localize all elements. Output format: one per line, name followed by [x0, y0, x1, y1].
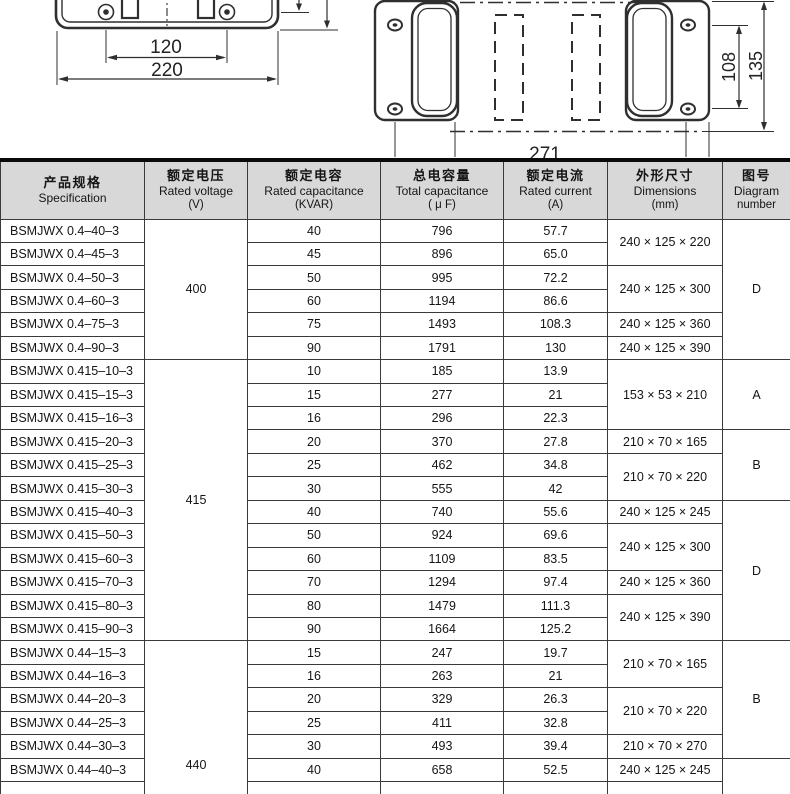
cell-dimensions: 210 × 70 × 220: [608, 688, 723, 735]
cell-dimensions: 240 × 125 × 300: [608, 524, 723, 571]
cell-spec: BSMJWX 0.44–15–3: [1, 641, 145, 664]
cell-spec: BSMJWX 0.415–70–3: [1, 571, 145, 594]
cell-dimensions: 240 × 125 × 220: [608, 219, 723, 266]
cell-rated-current: 86.6: [504, 289, 608, 312]
clamp-bracket: [627, 3, 672, 116]
header-unit: number: [725, 198, 788, 212]
cell-spec: BSMJWX 0.4–75–3: [1, 313, 145, 336]
cell-spec: BSMJWX 0.415–10–3: [1, 360, 145, 383]
cell-rated-current: 55.6: [504, 500, 608, 523]
table-row: BSMJWX 0.4–50–35099572.2240 × 125 × 300: [1, 266, 790, 289]
header-zh: 总电容量: [383, 168, 501, 184]
header-unit: ( μ F): [383, 198, 501, 212]
cell-rated-capacitance: 15: [248, 641, 381, 664]
cell-rated-voltage: 440: [145, 641, 248, 794]
cell-rated-current: 19.7: [504, 641, 608, 664]
cell-total-capacitance: 247: [381, 641, 504, 664]
cell-rated-current: 57.7: [504, 219, 608, 242]
header-en: Total capacitance: [383, 184, 501, 199]
cell-spec: BSMJWX 0.415–25–3: [1, 453, 145, 476]
col-header-rated-current: 额定电流 Rated current (A): [504, 160, 608, 219]
cell-total-capacitance: 493: [381, 735, 504, 758]
col-header-rated-voltage: 额定电压 Rated voltage (V): [145, 160, 248, 219]
cell-rated-current: 83.5: [504, 547, 608, 570]
cell-spec: BSMJWX 0.4–40–3: [1, 219, 145, 242]
cell-rated-capacitance: 60: [248, 547, 381, 570]
cell-total-capacitance: 995: [381, 266, 504, 289]
cell-spec: BSMJWX 0.415–20–3: [1, 430, 145, 453]
cell-rated-voltage: 415: [145, 360, 248, 641]
cell-rated-current: 108.3: [504, 313, 608, 336]
cell-diagram-number: D: [723, 500, 790, 641]
cell-total-capacitance: 185: [381, 360, 504, 383]
cell-dimensions: 240 × 125 × 300: [608, 266, 723, 313]
table-row: BSMJWX 0.415–50–35092469.6240 × 125 × 30…: [1, 524, 790, 547]
cell-dimensions: 240 × 125 × 390: [608, 336, 723, 359]
cell-rated-capacitance: 10: [248, 360, 381, 383]
header-zh: 额定电压: [147, 168, 245, 184]
header-zh: 图号: [725, 168, 788, 184]
cell-dimensions: 210 × 70 × 220: [608, 453, 723, 500]
table-row: BSMJWX 0.44–40–34065852.5240 × 125 × 245: [1, 758, 790, 781]
cell-spec: BSMJWX 0.415–15–3: [1, 383, 145, 406]
cell-total-capacitance: 555: [381, 477, 504, 500]
cell-total-capacitance: 1664: [381, 617, 504, 640]
cell-diagram-number: [723, 758, 790, 794]
terminal-slot: [198, 0, 214, 18]
cell-rated-capacitance: 15: [248, 383, 381, 406]
table-row: BSMJWX 0.4–75–3751493108.3240 × 125 × 36…: [1, 313, 790, 336]
dim-label-108: 108: [719, 52, 739, 82]
spec-table: 产品规格 Specification 额定电压 Rated voltage (V…: [0, 158, 790, 794]
cell-rated-current: 34.8: [504, 453, 608, 476]
cell-total-capacitance: 1109: [381, 547, 504, 570]
cell-rated-capacitance: 20: [248, 430, 381, 453]
cell-dimensions: 240 × 125 × 360: [608, 313, 723, 336]
cell-total-capacitance: 658: [381, 758, 504, 781]
cell-rated-current: 97.4: [504, 571, 608, 594]
col-header-diagram-number: 图号 Diagram number: [723, 160, 790, 219]
header-en: Rated capacitance: [250, 184, 378, 199]
header-en: Dimensions: [610, 184, 720, 199]
header-en: Diagram: [725, 184, 788, 199]
cell-spec: [1, 782, 145, 794]
cell-dimensions: 240 × 125 × 245: [608, 500, 723, 523]
cell-rated-capacitance: 20: [248, 688, 381, 711]
cell-rated-current: 13.9: [504, 360, 608, 383]
cell-total-capacitance: 277: [381, 383, 504, 406]
header-zh: 额定电流: [506, 168, 605, 184]
cell-rated-current: [504, 782, 608, 794]
cell-rated-current: 27.8: [504, 430, 608, 453]
cell-rated-capacitance: 40: [248, 758, 381, 781]
col-header-specification: 产品规格 Specification: [1, 160, 145, 219]
table-row: BSMJWX 0.415–25–32546234.8210 × 70 × 220: [1, 453, 790, 476]
cell-rated-current: 21: [504, 383, 608, 406]
table-row: BSMJWX 0.415–40–34074055.6240 × 125 × 24…: [1, 500, 790, 523]
col-header-total-capacitance: 总电容量 Total capacitance ( μ F): [381, 160, 504, 219]
cell-spec: BSMJWX 0.415–16–3: [1, 407, 145, 430]
cell-spec: BSMJWX 0.415–80–3: [1, 594, 145, 617]
cell-rated-current: 72.2: [504, 266, 608, 289]
header-unit: (KVAR): [250, 198, 378, 212]
cell-rated-current: 130: [504, 336, 608, 359]
table-row: BSMJWX 0.415–10–34151018513.9153 × 53 × …: [1, 360, 790, 383]
cell-spec: BSMJWX 0.4–90–3: [1, 336, 145, 359]
dim-label-271: 271: [529, 144, 561, 158]
cell-rated-current: 69.6: [504, 524, 608, 547]
dim-label-135: 135: [746, 51, 766, 81]
table-row: BSMJWX 0.415–80–3801479111.3240 × 125 × …: [1, 594, 790, 617]
clamp-bracket: [412, 3, 457, 116]
cell-dimensions: 153 × 53 × 210: [608, 360, 723, 430]
front-view-drawing: [56, 0, 338, 85]
cell-rated-current: 22.3: [504, 407, 608, 430]
cell-spec: BSMJWX 0.44–20–3: [1, 688, 145, 711]
datasheet-page: 120 220: [0, 0, 790, 794]
cell-rated-current: 26.3: [504, 688, 608, 711]
table-row: BSMJWX 0.44–20–32032926.3210 × 70 × 220: [1, 688, 790, 711]
col-header-rated-capacitance: 额定电容 Rated capacitance (KVAR): [248, 160, 381, 219]
spec-table-body: BSMJWX 0.4–40–34004079657.7240 × 125 × 2…: [1, 219, 790, 794]
cell-diagram-number: B: [723, 641, 790, 758]
cell-rated-capacitance: 80: [248, 594, 381, 617]
cell-rated-current: 52.5: [504, 758, 608, 781]
cell-total-capacitance: 296: [381, 407, 504, 430]
spec-table-header: 产品规格 Specification 额定电压 Rated voltage (V…: [1, 160, 790, 219]
cell-rated-capacitance: 40: [248, 219, 381, 242]
header-zh: 额定电容: [250, 168, 378, 184]
cell-total-capacitance: 740: [381, 500, 504, 523]
header-unit: (A): [506, 198, 605, 212]
cell-total-capacitance: 1791: [381, 336, 504, 359]
cell-total-capacitance: 1493: [381, 313, 504, 336]
cell-spec: BSMJWX 0.415–40–3: [1, 500, 145, 523]
cell-spec: BSMJWX 0.415–50–3: [1, 524, 145, 547]
cell-diagram-number: A: [723, 360, 790, 430]
cell-dimensions: 240 × 125 × 245: [608, 758, 723, 781]
cell-rated-capacitance: 16: [248, 407, 381, 430]
col-header-dimensions: 外形尺寸 Dimensions (mm): [608, 160, 723, 219]
table-row: BSMJWX 0.44–30–33049339.4210 × 70 × 270: [1, 735, 790, 758]
cell-total-capacitance: 796: [381, 219, 504, 242]
cell-spec: BSMJWX 0.415–60–3: [1, 547, 145, 570]
cell-dimensions: 240 × 125 × 390: [608, 594, 723, 641]
cell-rated-current: 32.8: [504, 711, 608, 734]
cell-rated-capacitance: 90: [248, 336, 381, 359]
table-row: BSMJWX 0.4–90–3901791130240 × 125 × 390: [1, 336, 790, 359]
cell-rated-current: 111.3: [504, 594, 608, 617]
cell-total-capacitance: 370: [381, 430, 504, 453]
cell-rated-voltage: 400: [145, 219, 248, 360]
cell-total-capacitance: [381, 782, 504, 794]
cell-rated-capacitance: 90: [248, 617, 381, 640]
cell-dimensions: 210 × 70 × 165: [608, 430, 723, 453]
cell-total-capacitance: 411: [381, 711, 504, 734]
cell-rated-current: 125.2: [504, 617, 608, 640]
cell-rated-capacitance: 30: [248, 477, 381, 500]
cell-total-capacitance: 896: [381, 242, 504, 265]
dim-label-120: 120: [150, 37, 182, 58]
cell-rated-capacitance: 70: [248, 571, 381, 594]
cell-dimensions: 210 × 70 × 165: [608, 641, 723, 688]
cell-rated-capacitance: 16: [248, 664, 381, 687]
cell-spec: BSMJWX 0.44–30–3: [1, 735, 145, 758]
cell-rated-current: 65.0: [504, 242, 608, 265]
table-row-partial: [1, 782, 790, 794]
cell-rated-capacitance: 50: [248, 266, 381, 289]
cell-total-capacitance: 1479: [381, 594, 504, 617]
header-zh: 产品规格: [3, 175, 142, 191]
top-view-drawing: [375, 1, 774, 157]
cell-spec: BSMJWX 0.415–30–3: [1, 477, 145, 500]
cell-rated-capacitance: 25: [248, 453, 381, 476]
cell-rated-capacitance: 25: [248, 711, 381, 734]
cell-rated-capacitance: 60: [248, 289, 381, 312]
cell-total-capacitance: 462: [381, 453, 504, 476]
cell-spec: BSMJWX 0.44–25–3: [1, 711, 145, 734]
cell-rated-current: 21: [504, 664, 608, 687]
cell-rated-current: 42: [504, 477, 608, 500]
table-row: BSMJWX 0.415–70–370129497.4240 × 125 × 3…: [1, 571, 790, 594]
cell-total-capacitance: 924: [381, 524, 504, 547]
cell-rated-capacitance: 50: [248, 524, 381, 547]
cell-rated-capacitance: 30: [248, 735, 381, 758]
table-row: BSMJWX 0.415–20–32037027.8210 × 70 × 165…: [1, 430, 790, 453]
header-en: Rated current: [506, 184, 605, 199]
header-unit: (V): [147, 198, 245, 212]
cell-total-capacitance: 263: [381, 664, 504, 687]
technical-drawings: 120 220: [0, 0, 790, 158]
table-row: BSMJWX 0.4–40–34004079657.7240 × 125 × 2…: [1, 219, 790, 242]
terminal-slot: [122, 0, 138, 18]
header-zh: 外形尺寸: [610, 168, 720, 184]
cell-rated-capacitance: 45: [248, 242, 381, 265]
cell-dimensions: [608, 782, 723, 794]
cell-rated-capacitance: 75: [248, 313, 381, 336]
cell-total-capacitance: 1294: [381, 571, 504, 594]
cell-total-capacitance: 1194: [381, 289, 504, 312]
header-unit: (mm): [610, 198, 720, 212]
cell-spec: BSMJWX 0.415–90–3: [1, 617, 145, 640]
table-row: BSMJWX 0.44–15–34401524719.7210 × 70 × 1…: [1, 641, 790, 664]
cell-spec: BSMJWX 0.4–45–3: [1, 242, 145, 265]
hidden-body: [572, 15, 600, 120]
cell-spec: BSMJWX 0.4–50–3: [1, 266, 145, 289]
cell-diagram-number: B: [723, 430, 790, 500]
header-en: Rated voltage: [147, 184, 245, 199]
hidden-body: [495, 15, 523, 120]
cell-spec: BSMJWX 0.44–40–3: [1, 758, 145, 781]
cell-rated-current: 39.4: [504, 735, 608, 758]
cell-rated-capacitance: [248, 782, 381, 794]
header-en: Specification: [3, 191, 142, 206]
cell-spec: BSMJWX 0.4–60–3: [1, 289, 145, 312]
dim-label-220: 220: [151, 60, 183, 81]
cell-diagram-number: D: [723, 219, 790, 360]
header-row: 产品规格 Specification 额定电压 Rated voltage (V…: [1, 160, 790, 219]
cell-rated-capacitance: 40: [248, 500, 381, 523]
drawings-canvas: 120 220: [0, 0, 790, 158]
cell-dimensions: 210 × 70 × 270: [608, 735, 723, 758]
cell-total-capacitance: 329: [381, 688, 504, 711]
cell-spec: BSMJWX 0.44–16–3: [1, 664, 145, 687]
cell-dimensions: 240 × 125 × 360: [608, 571, 723, 594]
